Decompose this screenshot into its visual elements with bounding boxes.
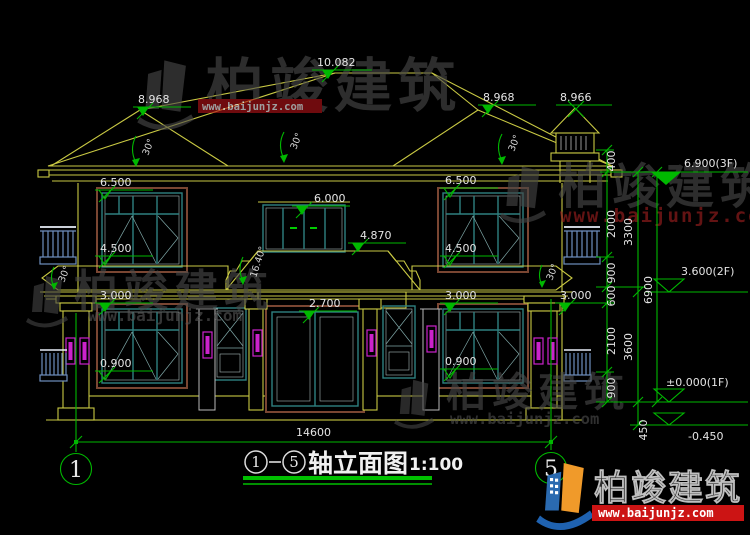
- svg-text:0.900: 0.900: [100, 357, 132, 370]
- svg-text:3.000: 3.000: [560, 289, 592, 302]
- svg-text:3.600(2F): 3.600(2F): [681, 265, 734, 278]
- svg-text:400: 400: [605, 151, 618, 172]
- drawing-canvas: 柏竣建筑 www.baijunjz.com 柏竣建筑 www.baijunjz.…: [0, 0, 750, 535]
- angle-main-left-hip: 30°: [132, 136, 157, 167]
- sliding-door-2f: [263, 205, 345, 252]
- watermark-top: 柏竣建筑 www.baijunjz.com: [137, 52, 462, 130]
- wall-lamp: [427, 326, 436, 352]
- svg-text:900: 900: [605, 263, 618, 284]
- svg-text:450: 450: [637, 420, 650, 441]
- wall-lamp: [253, 330, 262, 356]
- svg-text:6.500: 6.500: [100, 176, 132, 189]
- title-end-axis: 5: [289, 453, 299, 471]
- level-2f: 3.600(2F): [645, 265, 748, 292]
- svg-text:4.870: 4.870: [360, 229, 392, 242]
- brand-url: www.baijunjz.com: [598, 506, 714, 520]
- svg-text:4.500: 4.500: [445, 242, 477, 255]
- svg-text:3600: 3600: [622, 333, 635, 361]
- wall-lamp: [534, 338, 543, 364]
- entry-door: [266, 306, 364, 412]
- svg-text:8.966: 8.966: [560, 91, 592, 104]
- axis-bubble-1: 1: [61, 454, 92, 485]
- wall-lamp: [66, 338, 75, 364]
- balcony-2f-right: [564, 227, 600, 264]
- marker-chimney-top: 8.966: [556, 91, 612, 117]
- svg-text:6.000: 6.000: [314, 192, 346, 205]
- svg-text:±0.000(1F): ±0.000(1F): [666, 376, 729, 389]
- watermark-url: www.baijunjz.com: [560, 205, 750, 227]
- svg-text:8.968: 8.968: [138, 93, 170, 106]
- angle-main-right-slope: 30°: [498, 133, 523, 165]
- svg-text:1: 1: [69, 458, 83, 483]
- svg-text:2100: 2100: [605, 327, 618, 355]
- svg-text:600: 600: [605, 286, 618, 307]
- svg-text:4.500: 4.500: [100, 242, 132, 255]
- cad-elevation-drawing: 柏竣建筑 www.baijunjz.com 柏竣建筑 www.baijunjz.…: [0, 0, 750, 535]
- title-start-axis: 1: [251, 453, 261, 471]
- drawing-title: 1 5 轴立面图 1:100: [243, 449, 463, 484]
- svg-text:-0.450: -0.450: [688, 430, 723, 443]
- wall-lamp: [367, 330, 376, 356]
- svg-text:6.900(3F): 6.900(3F): [684, 157, 737, 170]
- svg-text:2000: 2000: [605, 210, 618, 238]
- watermark-url: www.baijunjz.com: [202, 101, 303, 113]
- overall-width-dim: 14600: [296, 426, 331, 439]
- svg-text:900: 900: [605, 378, 618, 399]
- wall-lamp: [80, 338, 89, 364]
- svg-text:30°: 30°: [545, 262, 562, 282]
- svg-text:8.968: 8.968: [483, 91, 515, 104]
- svg-text:6900: 6900: [642, 276, 655, 304]
- title-text: 轴立面图: [308, 449, 408, 478]
- window-2f-left: [97, 188, 187, 272]
- wall-lamp: [203, 332, 212, 358]
- watermark-url: www.baijunjz.com: [450, 410, 599, 428]
- svg-text:30°: 30°: [289, 131, 306, 151]
- brand-logo-colored: 柏竣建筑 www.baijunjz.com: [536, 463, 744, 530]
- level-minus-450: -0.450: [645, 413, 748, 443]
- watermark-url: www.baijunjz.com: [88, 306, 242, 325]
- wall-lamp: [548, 338, 557, 364]
- svg-text:30°: 30°: [57, 264, 74, 284]
- svg-text:30°: 30°: [507, 133, 524, 153]
- svg-text:3.000: 3.000: [100, 289, 132, 302]
- brand-name: 柏竣建筑: [594, 468, 742, 509]
- svg-text:6.500: 6.500: [445, 174, 477, 187]
- title-scale: 1:100: [409, 455, 463, 475]
- svg-text:3300: 3300: [622, 218, 635, 246]
- window-1f-narrow-right: [383, 306, 415, 378]
- svg-text:30°: 30°: [141, 137, 158, 157]
- svg-text:3.000: 3.000: [445, 289, 477, 302]
- angle-main-left-slope: 30°: [280, 131, 305, 163]
- balcony-2f-left: [40, 227, 76, 264]
- svg-text:0.900: 0.900: [445, 355, 477, 368]
- svg-text:2.700: 2.700: [309, 297, 341, 310]
